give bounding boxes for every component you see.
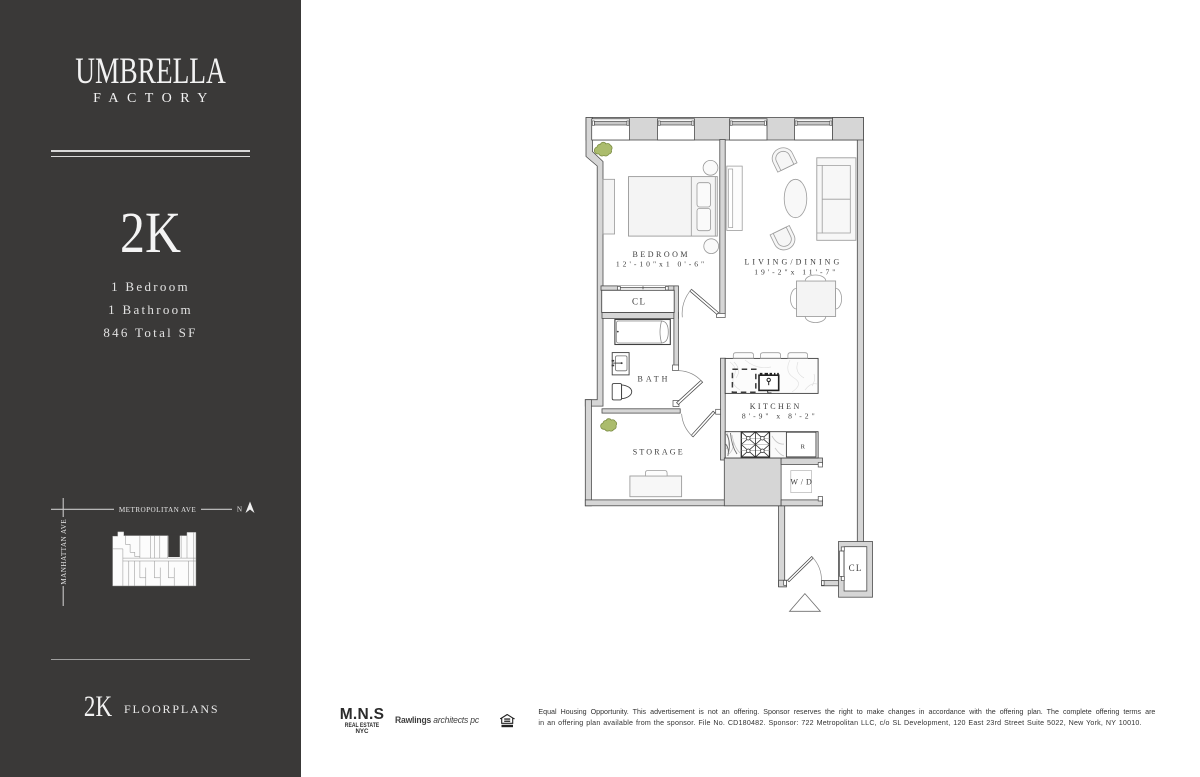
svg-text:W / D: W / D (790, 478, 812, 487)
svg-text:KITCHEN: KITCHEN (750, 402, 802, 411)
svg-text:R: R (801, 443, 806, 450)
svg-text:8'-9" x 8'-2": 8'-9" x 8'-2" (742, 411, 818, 420)
svg-text:CL: CL (849, 563, 863, 573)
svg-text:BATH: BATH (638, 375, 671, 384)
svg-text:12'-10"x1 0'-6": 12'-10"x1 0'-6" (616, 259, 707, 268)
svg-text:CL: CL (632, 297, 647, 307)
svg-text:19'-2"x 11'-7": 19'-2"x 11'-7" (754, 268, 838, 277)
svg-text:LIVING/DINING: LIVING/DINING (744, 257, 842, 266)
svg-text:BEDROOM: BEDROOM (633, 250, 691, 259)
svg-text:STORAGE: STORAGE (633, 448, 685, 457)
